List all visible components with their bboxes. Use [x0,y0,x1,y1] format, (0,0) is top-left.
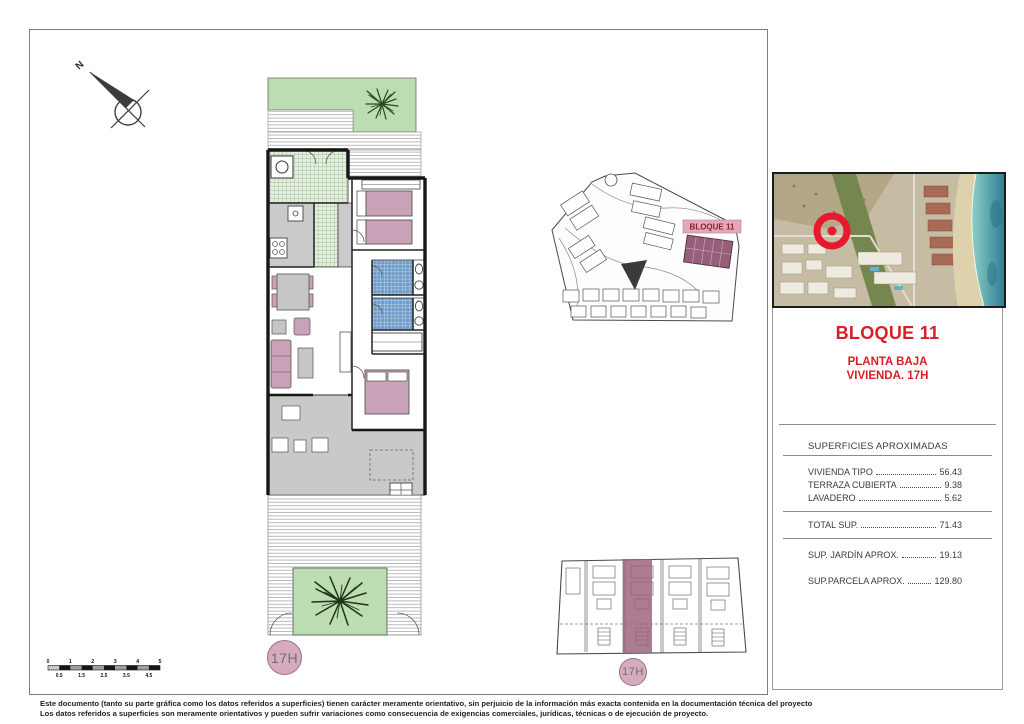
hall-closet [338,203,352,267]
highlighted-unit [623,559,652,653]
hallway [314,203,338,267]
bedroom-2 [357,180,420,244]
dotted-leader [861,527,936,528]
master-bedroom [365,333,422,414]
surfaces-table: VIVIENDA TIPO 56.43 TERRAZA CUBIERTA 9.3… [808,466,962,505]
surface-label: SUP. JARDÍN APROX. [808,549,899,562]
dotted-leader [876,474,937,475]
scale-bar: 0 1 2 3 4 5 0.5 1.5 2.5 3.5 4.5 [42,655,166,681]
bed-single [366,220,412,244]
sink-icon [415,317,423,325]
surface-row: TERRAZA CUBIERTA 9.38 [808,479,962,492]
scale-tick-label: 2 [91,659,94,665]
scale-tick-label: 4.5 [145,673,152,679]
floor-plan [258,70,430,670]
sofa [271,340,291,388]
highlighted-block [684,235,733,268]
bed-single [366,191,412,216]
surfaces-total: TOTAL SUP. 71.43 [808,519,962,532]
scale-tick-label: 2.5 [101,673,108,679]
divider [783,511,992,512]
bathroom-1 [372,260,425,295]
living-dining-room [271,274,351,388]
dining-table [277,274,309,310]
north-label: N [74,59,87,72]
scale-tick-label: 1 [69,659,72,665]
surface-row: SUP. JARDÍN APROX. 19.13 [808,549,962,562]
scale-tick-label: 5 [158,659,161,665]
surface-row-total: TOTAL SUP. 71.43 [808,519,962,532]
floor-plan-unit-badge: 17H [267,640,302,675]
roundabout [605,174,617,186]
surface-label: TOTAL SUP. [808,519,858,532]
toilet-icon [415,264,422,274]
surface-row: LAVADERO 5.62 [808,492,962,505]
front-terrace [268,495,421,635]
scale-tick-label: 3 [114,659,117,665]
surface-row: VIVIENDA TIPO 56.43 [808,466,962,479]
scale-tick-label: 1.5 [78,673,85,679]
title-block-panel: BLOQUE 11 PLANTA BAJA VIVIENDA. 17H SUPE… [772,308,1003,690]
surface-value: 56.43 [939,466,962,479]
hob-icon [270,238,287,258]
surface-value: 71.43 [939,519,962,532]
block-key-plan [552,548,750,663]
coffee-table [298,348,313,378]
surfaces-header: SUPERFICIES APROXIMADAS [783,441,992,456]
surface-label: TERRAZA CUBIERTA [808,479,897,492]
unit-subtitle: VIVIENDA. 17H [773,370,1002,382]
site-plan: BLOQUE 11 [535,168,747,333]
surface-value: 5.62 [944,492,962,505]
laundry-room [268,150,348,203]
scale-tick-label: 0 [46,659,49,665]
disclaimer-line-1: Este documento (tanto su parte gráfica c… [40,699,1020,709]
washing-machine-icon [271,156,293,178]
plan-sheet: N [0,0,1024,724]
oven-icon [288,206,303,221]
dotted-leader [902,557,937,558]
unit-label: 17H [622,666,644,678]
divider [783,538,992,539]
floor-subtitle: PLANTA BAJA [773,356,1002,368]
unit-label: 17H [271,650,298,666]
surface-value: 19.13 [939,549,962,562]
surface-label: VIVIENDA TIPO [808,466,873,479]
scale-tick-label: 4 [136,659,140,665]
bathroom-2 [372,298,425,330]
dotted-leader [900,487,942,488]
block-title: BLOQUE 11 [773,323,1002,344]
surfaces-extras: SUP. JARDÍN APROX. 19.13 SUP.PARCELA APR… [808,549,962,588]
aerial-photo-image [774,174,1004,306]
armchair [294,318,310,335]
tv-unit [340,332,351,372]
north-arrow-icon: N [62,50,162,142]
divider [779,424,996,425]
sink-icon [415,281,423,289]
kitchen [268,203,314,267]
scale-tick-label: 3.5 [123,673,130,679]
surface-label: SUP.PARCELA APROX. [808,575,905,588]
surface-row: SUP.PARCELA APROX. 129.80 [808,575,962,588]
aerial-photo [772,172,1006,308]
surface-value: 129.80 [934,575,962,588]
surface-value: 9.38 [944,479,962,492]
scale-tick-label: 0.5 [56,673,63,679]
toilet-icon [415,301,422,311]
block-plan-unit-badge: 17H [619,658,647,686]
dotted-leader [908,583,932,584]
surface-label: LAVADERO [808,492,856,505]
disclaimer-line-2: Los datos referidos a superficies son me… [40,709,1020,719]
legal-disclaimer: Este documento (tanto su parte gráfica c… [40,699,1020,718]
dotted-leader [859,500,942,501]
site-plan-block-label: BLOQUE 11 [690,223,735,232]
